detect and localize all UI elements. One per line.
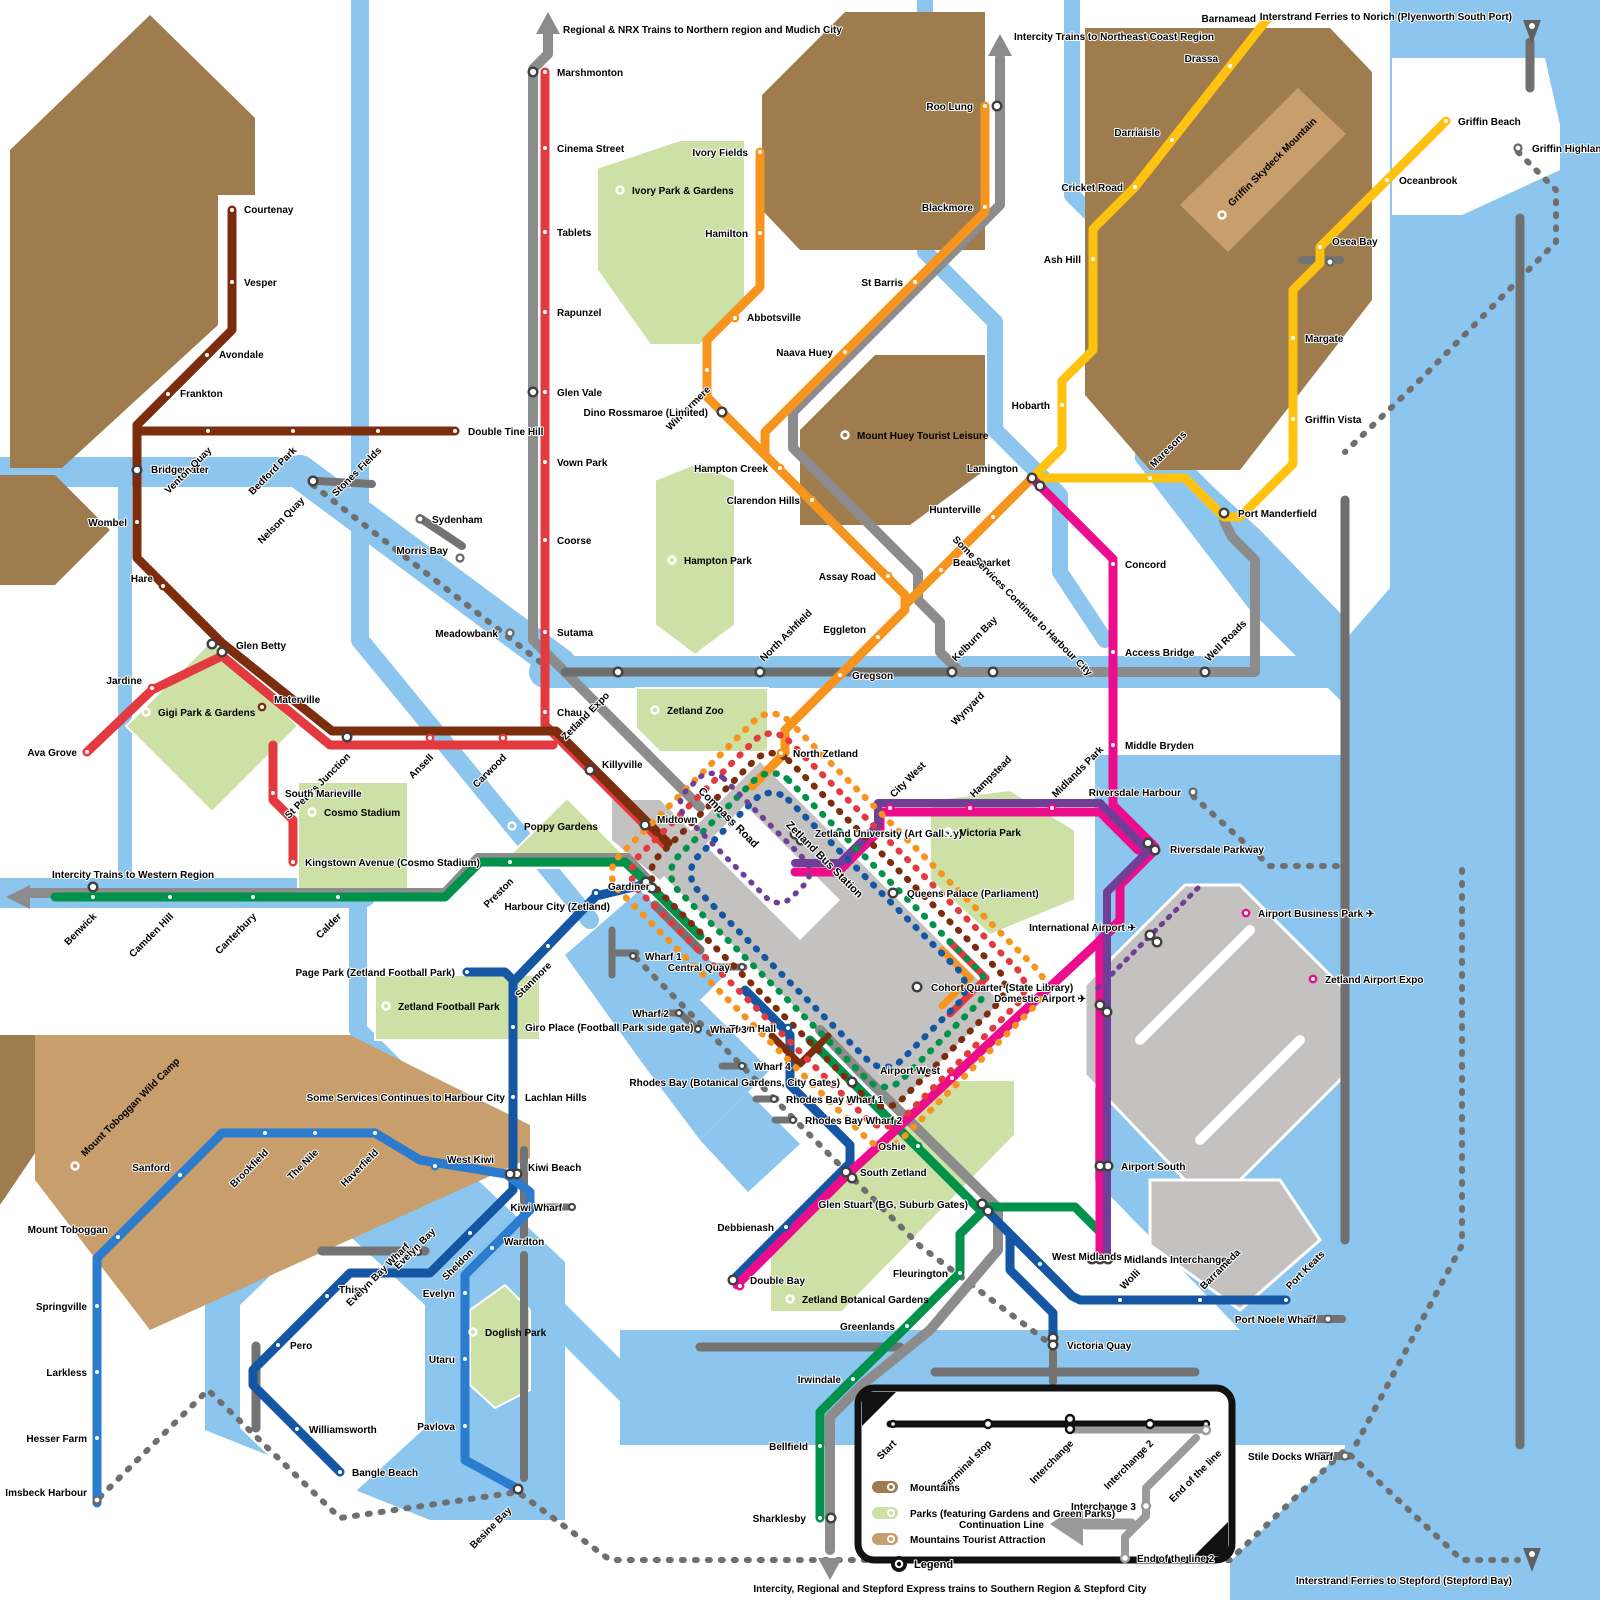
legend-station-1 [984, 1420, 992, 1428]
station-dot-st-barris[interactable] [912, 279, 918, 285]
station-item[interactable] [1327, 259, 1334, 266]
station-item[interactable] [1036, 482, 1045, 491]
interchange-ring-midtown[interactable] [641, 821, 650, 830]
station-dot-evelyn[interactable] [462, 1290, 468, 1296]
station-dot-maresons[interactable] [1147, 475, 1153, 481]
station-marshmonton[interactable]: Marshmonton [542, 68, 623, 79]
interchange-ring-item[interactable] [208, 640, 217, 649]
label-midtown: Midtown [657, 815, 698, 826]
label-page-park-zetland-football-park: Page Park (Zetland Football Park) [296, 968, 455, 979]
station-dot-hesser-farm[interactable] [94, 1435, 100, 1441]
station-dot-wombel[interactable] [134, 519, 140, 525]
station-dot-haverfield[interactable] [372, 1130, 378, 1136]
legend-item-parks-featuring-gardens-and-green-parks: Parks (featuring Gardens and Green Parks… [910, 1509, 1115, 1520]
legend-item-mountains-tourist-attraction: Mountains Tourist Attraction [910, 1535, 1046, 1546]
station-dot-middle-bryden[interactable] [1110, 742, 1116, 748]
station-hesser-farm[interactable]: Hesser Farm [26, 1434, 100, 1445]
station-ava-grove[interactable]: Ava Grove [27, 748, 90, 759]
station-courtenay[interactable]: Courtenay [229, 205, 294, 216]
station-dot-canterbury[interactable] [250, 894, 256, 900]
station-dot-concord[interactable] [1110, 561, 1116, 567]
station-dot-roo-lung[interactable] [982, 103, 988, 109]
interchange-ring-item[interactable] [529, 68, 538, 77]
station-dot-port-keats[interactable] [1283, 1297, 1289, 1303]
label-ivory-park-gardens: Ivory Park & Gardens [632, 186, 734, 197]
station-dot-bangle-beach[interactable] [337, 1469, 343, 1475]
label-roo-lung: Roo Lung [926, 102, 973, 113]
station-dot-barrameda[interactable] [1197, 1297, 1203, 1303]
station-glen-stuart-bg-suburb-gates[interactable]: Glen Stuart (BG, Suburb Gates) [819, 1200, 987, 1211]
station-sharklesby[interactable]: Sharklesby [753, 1514, 824, 1525]
label-margate: Margate [1305, 334, 1344, 345]
station-dot-preston[interactable] [507, 859, 513, 865]
station-dot-griffin-vista[interactable] [1290, 416, 1296, 422]
station-imsbeck-harbour[interactable]: Imsbeck Harbour [5, 1488, 100, 1504]
station-dot-town-hall[interactable] [785, 1025, 791, 1031]
line-red-cosmo [273, 745, 293, 862]
label-city-west: City West [888, 760, 928, 800]
station-item[interactable] [827, 1514, 836, 1523]
station-dot-pero[interactable] [275, 1342, 281, 1348]
station-dot-rapunzel[interactable] [542, 309, 548, 315]
station-dot-hobarth[interactable] [1059, 402, 1065, 408]
station-dot-ivory-fields[interactable] [757, 149, 763, 155]
station-rhodes-bay-botanical-gardens-city-gates[interactable]: Rhodes Bay (Botanical Gardens, City Gate… [629, 1078, 856, 1089]
interchange-ring-glen-stuart-bg-suburb-gates[interactable] [978, 1200, 987, 1209]
station-giro-place-football-park-side-gate[interactable]: Giro Place (Football Park side gate) [510, 1023, 694, 1034]
station-dot-coorse[interactable] [542, 537, 548, 543]
label-midlands-interchange: Midlands Interchange [1124, 1255, 1227, 1266]
park-label-gigi-park-gardens[interactable]: Gigi Park & Gardens [143, 708, 256, 719]
station-dot-wardton[interactable] [489, 1245, 495, 1251]
label-giro-place-football-park-side-gate: Giro Place (Football Park side gate) [525, 1023, 693, 1034]
station-dot-south-marieville[interactable] [270, 790, 276, 796]
wharf-dot-central-quay[interactable] [739, 964, 745, 970]
label-griffin-highlands-wharf: Griffin Highlands Wharf [1532, 144, 1600, 155]
station-dot-north-zetland[interactable] [778, 750, 784, 756]
station-dot-the-nile[interactable] [312, 1130, 318, 1136]
label-cricket-road: Cricket Road [1061, 183, 1123, 194]
label-bangle-beach: Bangle Beach [352, 1468, 418, 1479]
label-greenlands: Greenlands [840, 1322, 895, 1333]
interchange-ring-queens-palace-parliament[interactable] [889, 889, 898, 898]
station-middle-bryden[interactable]: Middle Bryden [1110, 741, 1194, 752]
ferry-stop-imsbeck-harbour[interactable] [94, 1497, 101, 1504]
station-dot-zetland-airport-expo[interactable] [1310, 976, 1316, 982]
label-calder: Calder [314, 911, 344, 941]
station-hamilton[interactable]: Hamilton [705, 229, 763, 240]
station-dot-vesper[interactable] [229, 279, 235, 285]
label-north-ashfield: North Ashfield [758, 608, 814, 664]
station-dot-windermere[interactable] [704, 367, 710, 373]
label-irwindale: Irwindale [798, 1375, 842, 1386]
interchange-ring-airport-south[interactable] [1096, 1162, 1105, 1171]
label-zetland-football-park: Zetland Football Park [398, 1002, 500, 1013]
station-item[interactable] [1144, 839, 1153, 848]
ferry-stop-riversdale-harbour[interactable] [1190, 789, 1197, 796]
station-dot-fleurington[interactable] [957, 1270, 963, 1276]
station-dot-hampstead[interactable] [967, 805, 973, 811]
interchange-ring-st-peters-junction[interactable] [343, 733, 352, 742]
interchange-ring-well-roads[interactable] [1201, 668, 1210, 677]
label-oshie: Oshie [878, 1142, 906, 1153]
interchange-ring-port-manderfield[interactable] [1220, 509, 1229, 518]
label-ava-grove: Ava Grove [27, 748, 77, 759]
station-dot-ash-hill[interactable] [1090, 256, 1096, 262]
station-zetland-airport-expo[interactable]: Zetland Airport Expo [1310, 975, 1424, 986]
interchange-ring-domestic-airport[interactable] [1096, 1001, 1105, 1010]
wharf-dot-kiwi-wharf[interactable] [569, 1204, 575, 1210]
interchange-ring-nelson-quay[interactable] [309, 477, 318, 486]
station-vown-park[interactable]: Vown Park [542, 458, 608, 469]
label-sutama: Sutama [557, 628, 594, 639]
label-zetland-airport-expo: Zetland Airport Expo [1325, 975, 1424, 986]
station-item[interactable] [1153, 938, 1162, 947]
interchange-ring-kelburn-bay[interactable] [948, 668, 957, 677]
label-rhodes-bay-botanical-gardens-city-gates: Rhodes Bay (Botanical Gardens, City Gate… [629, 1078, 840, 1089]
interchange-ring-riversdale-parkway[interactable] [1151, 846, 1160, 855]
ferry-stop-sydenham[interactable] [417, 516, 424, 523]
interchange-ring-bridgewater[interactable] [133, 466, 142, 475]
station-dot-margate[interactable] [1290, 335, 1296, 341]
interchange-ring-cohort-quarter-state-library[interactable] [913, 983, 922, 992]
interchange-ring-rhodes-bay-botanical-gardens-city-gates[interactable] [848, 1078, 857, 1087]
interchange-ring-south-zetland[interactable] [842, 1168, 851, 1177]
interchange-ring-zetland-expo[interactable] [614, 668, 623, 677]
station-dot-beaumarket[interactable] [938, 567, 944, 573]
label-cinema-street: Cinema Street [557, 144, 625, 155]
label-nelson-quay: Nelson Quay [256, 495, 307, 546]
label-sharklesby: Sharklesby [753, 1514, 807, 1525]
station-concord[interactable]: Concord [1110, 560, 1166, 571]
station-dot-hare[interactable] [160, 583, 166, 589]
station-dot-osea-bay[interactable] [1317, 244, 1323, 250]
station-dot-griffin-beach[interactable] [1443, 118, 1449, 124]
interchange-ring-item[interactable] [89, 883, 98, 892]
station-griffin-vista[interactable]: Griffin Vista [1290, 415, 1362, 426]
station-dot-page-park-zetland-football-park[interactable] [464, 969, 470, 975]
station-airport-business-park[interactable]: Airport Business Park ✈ [1243, 909, 1375, 920]
station-dot-sheldon[interactable] [467, 1230, 473, 1236]
annotation-intercity-regional-and-step: Intercity, Regional and Stepford Express… [753, 1584, 1147, 1595]
interchange-ring-kiwi-beach[interactable] [506, 1170, 515, 1179]
ferry-stop-meadowbank[interactable] [507, 630, 514, 637]
interchange-ring-item[interactable] [529, 388, 538, 397]
label-vown-park: Vown Park [557, 458, 608, 469]
station-dot-midlands-park[interactable] [1049, 805, 1055, 811]
label-marshmonton: Marshmonton [557, 68, 623, 79]
station-item[interactable] [529, 388, 538, 397]
annotation-regional-nrx-trains-to-nor: Regional & NRX Trains to Northern region… [563, 25, 842, 36]
station-item[interactable] [737, 1283, 743, 1289]
annotation-intercity-trains-to-northeas: Intercity Trains to Northeast Coast Regi… [1014, 32, 1214, 43]
label-blackmore: Blackmore [922, 203, 974, 214]
station-dot-airport-west[interactable] [949, 1075, 955, 1081]
label-port-manderfield: Port Manderfield [1238, 509, 1317, 520]
label-materville: Materville [274, 695, 321, 706]
station-dot-larkless[interactable] [94, 1369, 100, 1375]
label-port-noele-wharf: Port Noele Wharf [1235, 1315, 1317, 1326]
ferry-stop-stile-docks-wharf[interactable] [1342, 1453, 1349, 1460]
label-ivory-fields: Ivory Fields [692, 148, 748, 159]
interchange-ring-double-bay[interactable] [729, 1276, 738, 1285]
station-dot-west-kiwi[interactable] [432, 1163, 438, 1169]
station-dot-bedford-park[interactable] [290, 428, 296, 434]
interchange-ring-international-airport[interactable] [1146, 931, 1155, 940]
interchange-ring-glen-betty[interactable] [218, 648, 227, 657]
label-wharf-1: Wharf 1 [645, 952, 682, 963]
wharf-dot-wharf-3[interactable] [695, 1026, 701, 1032]
station-dot-abbotsville[interactable] [732, 315, 738, 321]
station-abbotsville[interactable]: Abbotsville [732, 313, 802, 324]
station-dot-courtenay[interactable] [229, 207, 235, 213]
station-dot-access-bridge[interactable] [1110, 649, 1116, 655]
station-dot-ava-grove[interactable] [84, 749, 90, 755]
interchange-ring-dino-rossmaroe-limited[interactable] [718, 408, 727, 417]
interchange-ring-item[interactable] [1144, 839, 1153, 848]
station-springville[interactable]: Springville [36, 1302, 100, 1313]
station-south-marieville[interactable]: South Marieville [270, 789, 362, 800]
station-dot-debbienash[interactable] [783, 1224, 789, 1230]
station-dot-materville[interactable] [259, 704, 265, 710]
station-dot-cinema-street[interactable] [542, 145, 548, 151]
label-imsbeck-harbour: Imsbeck Harbour [5, 1488, 87, 1499]
label-tablets: Tablets [557, 228, 592, 239]
label-wolli: Wolli [1118, 1267, 1143, 1292]
park-0 [597, 140, 745, 345]
label-zetland-zoo: Zetland Zoo [667, 706, 724, 717]
label-wynyard: Wynyard [950, 690, 988, 728]
annotation-interstrand-ferries-to-stepf: Interstrand Ferries to Stepford (Stepfor… [1296, 1576, 1512, 1587]
station-item[interactable] [89, 883, 98, 892]
station-rhodes-bay-wharf-1[interactable]: Rhodes Bay Wharf 1 [771, 1095, 884, 1106]
station-dot-carwood[interactable] [500, 735, 506, 741]
label-kiwi-beach: Kiwi Beach [528, 1163, 581, 1174]
label-doglish-park: Doglish Park [485, 1328, 547, 1339]
label-central-quay: Central Quay [668, 963, 731, 974]
label-zetland-university-art-gallery: Zetland University (Art Gallery) [815, 829, 962, 840]
station-dot-chau[interactable] [542, 709, 548, 715]
interchange-ring-item[interactable] [993, 102, 1002, 111]
wharf-dot-rhodes-bay-wharf-1[interactable] [771, 1096, 777, 1102]
ferry-stop-griffin-highlands-wharf[interactable] [1515, 145, 1522, 152]
station-dot-venton-quay[interactable] [205, 428, 211, 434]
map-canvas: MarshmontonCinema StreetTabletsRapunzelG… [0, 0, 1600, 1600]
mountain-1 [0, 475, 110, 585]
label-evelyn: Evelyn [423, 1289, 455, 1300]
station-dot-tablets[interactable] [542, 229, 548, 235]
station-dot-cricket-road[interactable] [1132, 184, 1138, 190]
legend-station-4 [1146, 1420, 1154, 1428]
station-dino-rossmaroe-limited[interactable]: Dino Rossmaroe (Limited) [584, 408, 727, 419]
label-hare: Hare [131, 574, 154, 585]
label-dino-rossmaroe-limited: Dino Rossmaroe (Limited) [584, 408, 708, 419]
station-dot-brookfield[interactable] [262, 1130, 268, 1136]
label-west-midlands: West Midlands [1052, 1252, 1122, 1263]
label-st-barris: St Barris [861, 278, 903, 289]
station-dot-glen-vale[interactable] [542, 389, 548, 395]
station-dot-darriaisle[interactable] [1169, 137, 1175, 143]
station-queens-palace-parliament[interactable]: Queens Palace (Parliament) [889, 889, 1039, 900]
interchange-ring-victoria-quay[interactable] [1049, 1341, 1058, 1350]
station-dot-giro-place-football-park-side-gate[interactable] [510, 1024, 516, 1030]
station-dot-naava-huey[interactable] [842, 349, 848, 355]
station-dot-clarendon-hills[interactable] [809, 497, 815, 503]
station-dot-item[interactable] [737, 1283, 743, 1289]
station-killyville[interactable]: Killyville [586, 760, 643, 774]
interchange-ring-item[interactable] [1103, 1008, 1112, 1017]
station-dot-drassa[interactable] [1227, 63, 1233, 69]
station-dot-ansell[interactable] [427, 735, 433, 741]
station-dot-marshmonton[interactable] [542, 69, 548, 75]
interchange-ring-north-ashfield[interactable] [756, 668, 765, 677]
legend-label-continuation: Continuation Line [959, 1520, 1044, 1531]
station-dot-gardiner[interactable] [593, 890, 599, 896]
ferry-pin-dot-0 [1529, 23, 1535, 29]
label-bellfield: Bellfield [769, 1442, 808, 1453]
station-glen-vale[interactable]: Glen Vale [542, 388, 603, 399]
annotation-intercity-trains-to-western: Intercity Trains to Western Region [52, 870, 214, 881]
interchange-ring-item[interactable] [827, 1514, 836, 1523]
station-ivory-fields[interactable]: Ivory Fields [692, 148, 763, 159]
station-dot-sanford[interactable] [177, 1172, 183, 1178]
station-page-park-zetland-football-park[interactable]: Page Park (Zetland Football Park) [296, 968, 471, 979]
station-dot-frankton[interactable] [165, 391, 171, 397]
station-dot-hunterville[interactable] [990, 514, 996, 520]
station-dot-mount-toboggan[interactable] [115, 1234, 121, 1240]
station-hobarth[interactable]: Hobarth [1012, 401, 1066, 412]
station-cinema-street[interactable]: Cinema Street [542, 144, 625, 155]
label-wharf-4: Wharf 4 [754, 1062, 791, 1073]
wharf-dot-wharf-2[interactable] [676, 1010, 682, 1016]
ferry-stop-port-noele-wharf[interactable] [1325, 1316, 1332, 1323]
interchange-ring-item[interactable] [1153, 938, 1162, 947]
station-dot-sutama[interactable] [542, 629, 548, 635]
station-dot-springville[interactable] [94, 1303, 100, 1309]
station-dot-double-tine-hill[interactable] [452, 428, 458, 434]
station-dot-oceanbrook[interactable] [1384, 177, 1390, 183]
label-wardton: Wardton [504, 1237, 544, 1248]
station-dot-city-west[interactable] [887, 805, 893, 811]
station-dot-west-midlands[interactable] [1037, 1261, 1043, 1267]
interchange-ring-besine-bay[interactable] [514, 1485, 523, 1494]
station-larkless[interactable]: Larkless [46, 1368, 100, 1379]
label-vesper: Vesper [244, 278, 277, 289]
station-dot-williamsworth[interactable] [294, 1426, 300, 1432]
park-label-zetland-football-park[interactable]: Zetland Football Park [383, 1002, 501, 1013]
label-barnamead: Barnamead [1202, 14, 1256, 25]
station-item[interactable] [529, 68, 538, 77]
station-dot-gregson[interactable] [837, 672, 843, 678]
station-double-tine-hill[interactable]: Double Tine Hill [452, 427, 544, 438]
station-dot-airport-business-park[interactable] [1243, 910, 1249, 916]
label-sanford: Sanford [132, 1163, 170, 1174]
station-dot-kingstown-avenue-cosmo-stadium[interactable] [290, 859, 296, 865]
label-avondale: Avondale [219, 350, 264, 361]
label-fleurington: Fleurington [893, 1269, 948, 1280]
legend-item-mountains: Mountains [910, 1483, 960, 1494]
station-dot-camden-hill[interactable] [167, 894, 173, 900]
station-item[interactable] [993, 102, 1002, 111]
station-dot-vown-park[interactable] [542, 459, 548, 465]
station-dot-blackmore[interactable] [982, 204, 988, 210]
ferry-stop-morris-bay[interactable] [457, 555, 464, 562]
station-kingstown-avenue-cosmo-stadium[interactable]: Kingstown Avenue (Cosmo Stadium) [290, 858, 480, 869]
station-item[interactable] [208, 640, 217, 649]
wharf-dot-wharf-4[interactable] [739, 1063, 745, 1069]
label-west-kiwi: West Kiwi [447, 1155, 494, 1166]
wharf-dot-wharf-1[interactable] [630, 953, 636, 959]
station-riversdale-harbour[interactable]: Riversdale Harbour [1089, 788, 1197, 799]
label-gregson: Gregson [852, 671, 893, 682]
label-lachlan-hills: Lachlan Hills [525, 1093, 587, 1104]
station-dot-hampton-creek[interactable] [777, 465, 783, 471]
label-queens-palace-parliament: Queens Palace (Parliament) [907, 889, 1039, 900]
interchange-ring-item[interactable] [1036, 482, 1045, 491]
label-glen-stuart-bg-suburb-gates: Glen Stuart (BG, Suburb Gates) [819, 1200, 968, 1211]
station-dot-pavlova[interactable] [462, 1423, 468, 1429]
legend-station-7 [1142, 1502, 1150, 1510]
station-dot-jardine[interactable] [149, 685, 155, 691]
label-mount-toboggan: Mount Toboggan [28, 1225, 108, 1236]
station-dot-hamilton[interactable] [757, 230, 763, 236]
mountain-2 [762, 12, 985, 250]
station-dot-avondale[interactable] [204, 352, 210, 358]
label-sydenham: Sydenham [432, 515, 483, 526]
station-dot-lachlan-hills[interactable] [510, 1094, 516, 1100]
station-cohort-quarter-state-library[interactable]: Cohort Quarter (State Library) [913, 983, 1074, 994]
mountain-label-mount-huey-tourist-leisure[interactable]: Mount Huey Tourist Leisure [842, 431, 989, 442]
label-wharf-3: Wharf 3 [710, 1025, 747, 1036]
station-lachlan-hills[interactable]: Lachlan Hills [510, 1093, 587, 1104]
label-hamilton: Hamilton [705, 229, 748, 240]
wharf-dot-rhodes-bay-wharf-2[interactable] [790, 1117, 796, 1123]
park-label-ivory-park-gardens[interactable]: Ivory Park & Gardens [617, 186, 735, 197]
station-dot-irwindale[interactable] [850, 1376, 856, 1382]
station-rapunzel[interactable]: Rapunzel [542, 308, 602, 319]
label-gardiner: Gardiner [608, 882, 650, 893]
interchange-ring-wynyard[interactable] [989, 668, 998, 677]
label-camden-hill: Camden Hill [127, 911, 176, 960]
ferry-stop-item[interactable] [1327, 259, 1334, 266]
station-rhodes-bay-wharf-2[interactable]: Rhodes Bay Wharf 2 [790, 1116, 903, 1127]
label-glen-vale: Glen Vale [557, 388, 602, 399]
station-dot-oshie[interactable] [915, 1143, 921, 1149]
station-dot-calder[interactable] [335, 894, 341, 900]
legend-station-8 [1121, 1554, 1129, 1562]
station-dot-eggleton[interactable] [875, 634, 881, 640]
station-dot-sharklesby[interactable] [817, 1515, 823, 1521]
station-dot-bellfield[interactable] [817, 1443, 823, 1449]
park-label-zetland-botanical-gardens[interactable]: Zetland Botanical Gardens [787, 1295, 930, 1306]
station-dot-utaru[interactable] [462, 1356, 468, 1362]
interchange-ring-lamington[interactable] [1028, 474, 1037, 483]
station-dot-stanmore[interactable] [545, 943, 551, 949]
label-abbotsville: Abbotsville [747, 313, 801, 324]
label-riversdale-parkway: Riversdale Parkway [1170, 845, 1264, 856]
label-coorse: Coorse [557, 536, 592, 547]
station-dot-wolli[interactable] [1117, 1297, 1123, 1303]
interchange-ring-killyville[interactable] [586, 766, 595, 775]
station-dot-greenlands[interactable] [904, 1323, 910, 1329]
station-west-midlands[interactable]: West Midlands [1037, 1252, 1122, 1267]
station-wombel[interactable]: Wombel [88, 518, 140, 529]
station-dot-thise[interactable] [324, 1293, 330, 1299]
station-item[interactable] [1103, 1008, 1112, 1017]
station-dot-stones-fields[interactable] [375, 428, 381, 434]
station-dot-assay-road[interactable] [885, 573, 891, 579]
station-dot-benwick[interactable] [90, 894, 96, 900]
